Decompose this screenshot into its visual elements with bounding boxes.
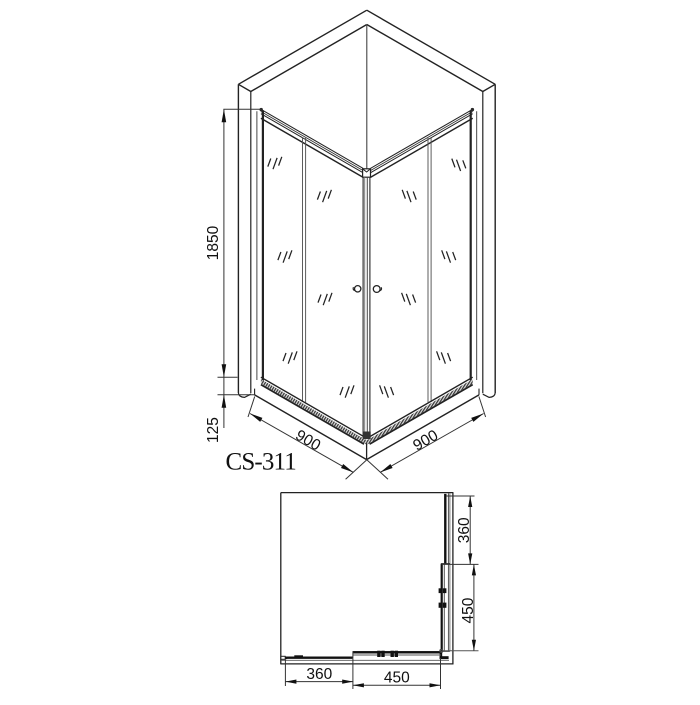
svg-text:900: 900 — [410, 427, 441, 455]
svg-text:360: 360 — [456, 517, 473, 543]
svg-text:360: 360 — [306, 666, 332, 683]
svg-text:125: 125 — [205, 417, 222, 443]
svg-text:900: 900 — [292, 427, 323, 455]
svg-text:1850: 1850 — [205, 225, 222, 260]
svg-text:CS‑311: CS‑311 — [226, 448, 296, 475]
svg-text:450: 450 — [384, 670, 410, 687]
svg-text:450: 450 — [460, 597, 477, 623]
